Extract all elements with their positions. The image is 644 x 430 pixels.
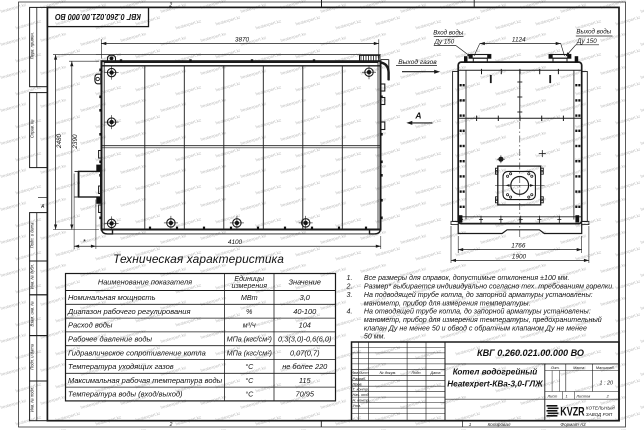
svg-text:не более 220: не более 220 bbox=[282, 362, 328, 371]
svg-text:Ду 150: Ду 150 bbox=[434, 39, 455, 46]
svg-text:Диапазон рабочего регулировани: Диапазон рабочего регулирования bbox=[67, 307, 190, 316]
svg-text:Значение: Значение bbox=[289, 278, 321, 287]
svg-text:КВГ 0.260.021.00.000 ВО: КВГ 0.260.021.00.000 ВО bbox=[55, 12, 141, 21]
svg-text:Лист: Лист bbox=[358, 371, 369, 375]
svg-text:На отводящей трубе котла, до з: На отводящей трубе котла, до запорной ар… bbox=[364, 308, 591, 316]
svg-text:Подп. и дата: Подп. и дата bbox=[29, 343, 34, 369]
svg-text:КОТЕЛЬНЫЙ: КОТЕЛЬНЫЙ bbox=[586, 403, 616, 410]
svg-text:Взам. инв. №: Взам. инв. № bbox=[29, 301, 34, 327]
svg-text:Формат А3: Формат А3 bbox=[560, 422, 586, 427]
svg-text:0,07(0,7): 0,07(0,7) bbox=[290, 348, 320, 357]
svg-text:2: 2 bbox=[168, 2, 172, 8]
svg-text:1.: 1. bbox=[347, 274, 353, 282]
svg-text:Н. контр.: Н. контр. bbox=[353, 399, 370, 403]
svg-text:40-100: 40-100 bbox=[293, 307, 317, 316]
svg-text:2.: 2. bbox=[346, 283, 353, 291]
svg-text:манометр, прибор для измерения: манометр, прибор для измерения температу… bbox=[364, 299, 531, 307]
svg-text:°С: °С bbox=[245, 390, 254, 399]
svg-text:3.: 3. bbox=[347, 291, 353, 299]
svg-text:Инв. № дубл.: Инв. № дубл. bbox=[29, 264, 34, 289]
svg-text:1766: 1766 bbox=[511, 243, 526, 250]
svg-text:МВт: МВт bbox=[241, 293, 258, 302]
svg-text:2480: 2480 bbox=[56, 133, 63, 149]
svg-text:4100: 4100 bbox=[228, 239, 243, 246]
svg-text:Масштаб: Масштаб bbox=[596, 366, 615, 370]
svg-text:70/95: 70/95 bbox=[296, 390, 315, 399]
svg-text:манометр, прибор для измерения: манометр, прибор для измерения температу… bbox=[364, 316, 602, 324]
svg-text:Масса: Масса bbox=[573, 366, 584, 370]
svg-text:А: А bbox=[40, 204, 45, 210]
svg-text:Выход газов: Выход газов bbox=[398, 58, 437, 66]
svg-text:Разраб.: Разраб. bbox=[353, 377, 367, 381]
svg-text:Техническая характеристика: Техническая характеристика bbox=[113, 252, 284, 266]
svg-text:1124: 1124 bbox=[512, 36, 526, 43]
svg-text:Heatexpert-КВа-3,0-ГЛЖ: Heatexpert-КВа-3,0-ГЛЖ bbox=[447, 379, 543, 388]
svg-text:м³/ч: м³/ч bbox=[243, 321, 256, 330]
svg-text:МПа (кгс/см²): МПа (кгс/см²) bbox=[227, 335, 272, 344]
svg-text:1 : 20: 1 : 20 bbox=[600, 381, 614, 387]
svg-text:1900: 1900 bbox=[512, 253, 527, 260]
svg-text:Выход воды: Выход воды bbox=[576, 29, 611, 36]
svg-text:KVZR: KVZR bbox=[560, 406, 585, 418]
svg-text:ЗАВОД РЭП: ЗАВОД РЭП bbox=[586, 412, 613, 417]
svg-text:Лит.: Лит. bbox=[550, 366, 560, 370]
svg-text:Номинальная мощность: Номинальная мощность bbox=[68, 293, 156, 302]
svg-text:Расход воды: Расход воды bbox=[68, 321, 113, 330]
svg-text:Наименование показателя: Наименование показателя bbox=[98, 278, 192, 287]
svg-text:2390: 2390 bbox=[72, 134, 79, 150]
svg-text:Все размеры для справок, допус: Все размеры для справок, допустимые откл… bbox=[364, 274, 570, 282]
svg-text:Котел водогрейный: Котел водогрейный bbox=[453, 367, 538, 376]
svg-text:Максимальная рабочая температу: Максимальная рабочая температура воды bbox=[68, 376, 223, 385]
svg-text:Инв. № подл.: Инв. № подл. bbox=[29, 387, 34, 412]
svg-text:3870: 3870 bbox=[235, 36, 250, 43]
svg-text:Копировал: Копировал bbox=[488, 422, 511, 427]
svg-text:На подводящей трубе котла, до: На подводящей трубе котла, до запорной а… bbox=[364, 291, 593, 299]
svg-text:3,0: 3,0 bbox=[300, 293, 311, 302]
svg-text:Перв. примен.: Перв. примен. bbox=[29, 32, 34, 59]
svg-text:4.: 4. bbox=[347, 308, 353, 316]
svg-text:Подп. и дата: Подп. и дата bbox=[29, 222, 34, 248]
svg-text:измерения: измерения bbox=[232, 282, 268, 290]
svg-text:115: 115 bbox=[299, 376, 312, 385]
svg-text:Вход воды: Вход воды bbox=[433, 30, 463, 37]
svg-text:МПа (кгс/см²): МПа (кгс/см²) bbox=[227, 348, 272, 357]
svg-text:Утв.: Утв. bbox=[353, 404, 362, 408]
svg-text:0,3(3,0)-0,6(6,0): 0,3(3,0)-0,6(6,0) bbox=[278, 335, 332, 344]
svg-text:Температура воды (вход/выход): Температура воды (вход/выход) bbox=[68, 390, 183, 399]
svg-text:Пров.: Пров. bbox=[353, 382, 363, 386]
svg-text:Рабочее давление воды: Рабочее давление воды bbox=[68, 335, 153, 344]
svg-text:°С: °С bbox=[245, 376, 254, 385]
svg-text:Дата: Дата bbox=[429, 371, 440, 375]
svg-text:Справ. №: Справ. № bbox=[29, 119, 34, 138]
svg-text:1: 1 bbox=[565, 395, 567, 399]
svg-text:1: 1 bbox=[469, 422, 472, 427]
svg-text:50 мм.: 50 мм. bbox=[364, 333, 386, 341]
svg-text:Лист: Лист bbox=[547, 395, 558, 399]
svg-text:°С: °С bbox=[245, 362, 254, 371]
svg-text:Т. контр.: Т. контр. bbox=[353, 388, 369, 392]
svg-text:Нач. отд.: Нач. отд. bbox=[353, 393, 370, 397]
svg-text:клапан Ду не менее 50 и обвод: клапан Ду не менее 50 и обвод с обратным… bbox=[364, 324, 587, 332]
svg-text:А: А bbox=[414, 111, 421, 121]
svg-text:2: 2 bbox=[169, 422, 173, 428]
svg-text:%: % bbox=[246, 307, 253, 316]
svg-text:Листов: Листов bbox=[575, 395, 590, 399]
svg-text:Температура уходящих газов: Температура уходящих газов bbox=[68, 362, 174, 371]
svg-text:Подп.: Подп. bbox=[411, 371, 421, 375]
svg-text:104: 104 bbox=[299, 321, 311, 330]
svg-text:Ду 150: Ду 150 bbox=[576, 38, 597, 45]
svg-text:КВГ 0.260.021.00.000 ВО: КВГ 0.260.021.00.000 ВО bbox=[477, 348, 584, 358]
svg-text:Гидравлическое сопротивление к: Гидравлическое сопротивление котла bbox=[68, 348, 206, 357]
svg-text:Размер* выбирается индивидуаль: Размер* выбирается индивидуально согласн… bbox=[364, 283, 614, 291]
svg-text:№ докум.: № докум. bbox=[380, 371, 397, 375]
